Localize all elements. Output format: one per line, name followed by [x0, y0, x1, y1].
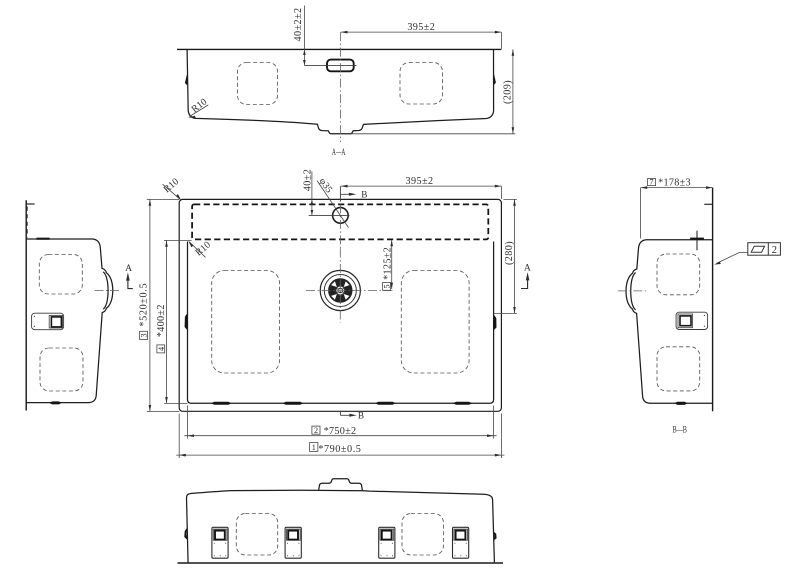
- svg-text:*520±0.5: *520±0.5: [138, 283, 149, 327]
- svg-text:B: B: [361, 190, 367, 200]
- svg-text:395±2: 395±2: [406, 176, 434, 187]
- svg-text:5: 5: [383, 284, 392, 288]
- svg-text:A—A: A—A: [332, 147, 346, 157]
- svg-text:1: 1: [312, 443, 316, 452]
- svg-text:B—B: B—B: [672, 425, 687, 435]
- svg-text:2: 2: [772, 245, 777, 256]
- svg-text:*178±3: *178±3: [658, 177, 691, 188]
- svg-text:4: 4: [157, 347, 166, 351]
- svg-text:*400±2: *400±2: [156, 304, 167, 337]
- svg-text:*790±0.5: *790±0.5: [318, 444, 361, 455]
- svg-text:40±2±2: 40±2±2: [293, 8, 304, 42]
- svg-text:3: 3: [140, 333, 149, 337]
- svg-text:2: 2: [314, 426, 318, 435]
- svg-text:395±2: 395±2: [407, 22, 435, 33]
- svg-text:(209): (209): [503, 80, 514, 104]
- svg-text:A: A: [125, 263, 132, 274]
- svg-text:B: B: [358, 411, 364, 421]
- svg-text:*750±2: *750±2: [324, 426, 357, 437]
- svg-text:40±2: 40±2: [302, 169, 313, 191]
- svg-text:*125±2: *125±2: [382, 247, 393, 280]
- svg-text:A: A: [524, 262, 531, 273]
- svg-text:(280): (280): [504, 241, 515, 265]
- svg-text:7: 7: [650, 177, 654, 186]
